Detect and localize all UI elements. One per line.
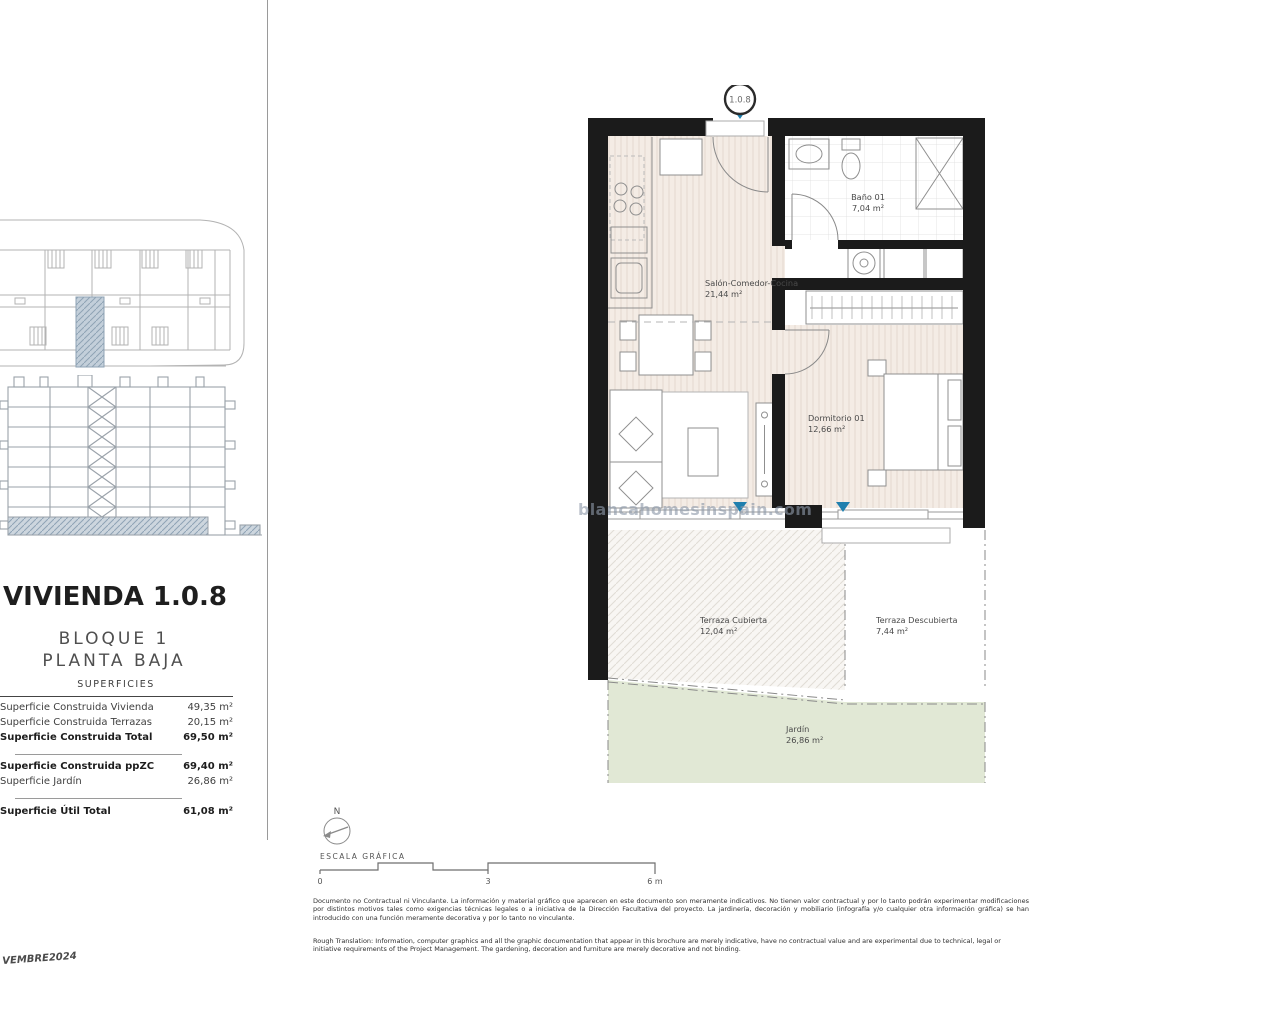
row-label: Superficie Útil Total bbox=[0, 806, 111, 819]
watermark-text: blancahomesinspain.com bbox=[578, 500, 812, 519]
room-label-bano: Baño 01 bbox=[851, 192, 885, 202]
north-label: N bbox=[334, 807, 341, 817]
page-title: VIVIENDA 1.0.8 bbox=[0, 582, 230, 612]
table-rule-mid bbox=[15, 754, 182, 755]
table-row: Superficie Construida Terrazas 20,15 m² bbox=[0, 717, 233, 730]
room-label-jardin: Jardín bbox=[785, 724, 809, 734]
room-area-terraza-cubierta: 12,04 m² bbox=[700, 626, 737, 636]
row-value: 26,86 m² bbox=[187, 776, 233, 789]
room-area-bano: 7,04 m² bbox=[852, 203, 884, 213]
room-area-terraza-descubierta: 7,44 m² bbox=[876, 626, 908, 636]
room-label-terraza-cubierta: Terraza Cubierta bbox=[699, 615, 767, 625]
disclaimer-english: Rough Translation: Information, computer… bbox=[313, 937, 1029, 954]
elevation-ground-floor-highlight bbox=[8, 517, 208, 535]
row-label: Superficie Construida Vivienda bbox=[0, 702, 154, 715]
row-label: Superficie Construida Total bbox=[0, 732, 152, 745]
scale-label: ESCALA GRÁFICA bbox=[320, 852, 405, 861]
scale-bar: N ESCALA GRÁFICA 0 3 6 m bbox=[310, 800, 680, 892]
row-label: Superficie Construida ppZC bbox=[0, 761, 154, 774]
row-value: 69,40 m² bbox=[183, 761, 233, 774]
row-value: 61,08 m² bbox=[183, 806, 233, 819]
floor-subtitle: PLANTA BAJA bbox=[0, 651, 228, 671]
unit-number-bubble: 1.0.8 bbox=[725, 85, 755, 114]
surfaces-table-header: SUPERFICIES bbox=[0, 679, 232, 690]
room-label-terraza-descubierta: Terraza Descubierta bbox=[875, 615, 958, 625]
block-subtitle: BLOQUE 1 bbox=[0, 629, 228, 649]
room-area-dormitorio: 12,66 m² bbox=[808, 424, 845, 434]
north-needle bbox=[323, 827, 348, 838]
table-row: Superficie Construida ppZC 69,40 m² bbox=[0, 761, 233, 774]
room-label-salon: Salón-Comedor-Cocina bbox=[705, 278, 798, 288]
floor-plan-drawing: 1.0.8 Salón-Comedor-Cocina 21,44 m² Baño… bbox=[575, 85, 995, 797]
elevation-drawing bbox=[0, 375, 268, 560]
scale-tick-3: 3 bbox=[485, 877, 490, 886]
row-value: 20,15 m² bbox=[187, 717, 233, 730]
outdoor-areas bbox=[608, 530, 985, 783]
table-rule-mid bbox=[15, 798, 182, 799]
scale-bar-line bbox=[320, 863, 655, 874]
row-label: Superficie Construida Terrazas bbox=[0, 717, 152, 730]
table-row: Superficie Útil Total 61,08 m² bbox=[0, 806, 233, 819]
table-row: Superficie Construida Total 69,50 m² bbox=[0, 732, 233, 745]
scale-tick-6: 6 m bbox=[647, 877, 663, 886]
table-row: Superficie Construida Vivienda 49,35 m² bbox=[0, 702, 233, 715]
room-area-jardin: 26,86 m² bbox=[786, 735, 823, 745]
unit-number-label: 1.0.8 bbox=[729, 96, 751, 106]
date-code: VEMBRE2024 bbox=[2, 951, 77, 967]
row-value: 49,35 m² bbox=[187, 702, 233, 715]
room-area-salon: 21,44 m² bbox=[705, 289, 742, 299]
row-value: 69,50 m² bbox=[183, 732, 233, 745]
disclaimer-spanish: Documento no Contractual ni Vinculante. … bbox=[313, 897, 1029, 922]
floorplan-brochure-page: { "document": { "title": "VIVIENDA 1.0.8… bbox=[0, 0, 1280, 1024]
table-row: Superficie Jardín 26,86 m² bbox=[0, 776, 233, 789]
scale-tick-0: 0 bbox=[317, 877, 322, 886]
row-label: Superficie Jardín bbox=[0, 776, 82, 789]
site-plan-drawing bbox=[0, 195, 268, 375]
room-label-dormitorio: Dormitorio 01 bbox=[808, 413, 865, 423]
site-plan-highlighted-unit bbox=[76, 297, 104, 367]
table-rule-top bbox=[0, 696, 233, 697]
entrance-step bbox=[706, 121, 764, 136]
